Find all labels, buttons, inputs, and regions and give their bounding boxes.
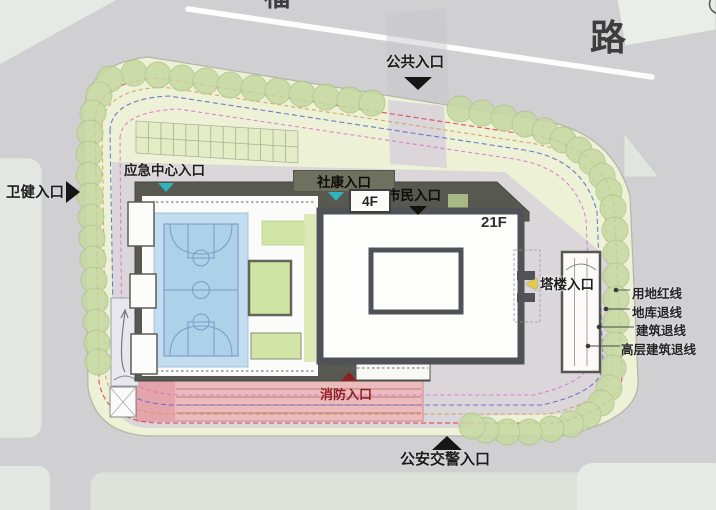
fire-lane-end-block (137, 381, 175, 421)
emergency-entrance-arrow-icon (158, 183, 174, 192)
legend-basement-setback-label: 地库退线 (632, 302, 682, 321)
health-entrance-label: 卫健入口 (6, 186, 64, 202)
community-entrance-label: 社康入口 (317, 171, 371, 191)
roof-green-1 (262, 221, 306, 245)
tower-floor-label: 21F (481, 215, 507, 232)
traffic-island (624, 133, 659, 177)
community-entrance-arrow-icon (328, 192, 344, 201)
tower-entrance-label: 塔楼入口 (540, 278, 594, 293)
sidewalk-top-left (0, 0, 116, 64)
public-entrance-label: 公共入口 (386, 56, 444, 72)
roof-green-strip (304, 214, 316, 362)
building-across-road (617, 0, 716, 46)
citizen-entrance-label: 市民入口 (387, 189, 441, 204)
roof-green-patch-2 (448, 194, 468, 208)
podium-floor-badge: 4F (349, 189, 391, 213)
tower-core (371, 250, 461, 312)
citizen-entrance-arrow-icon (409, 206, 427, 215)
site-plan-drawing (0, 0, 716, 510)
sidewalk-bottom-left (0, 466, 50, 510)
fire-entrance-label: 消防入口 (320, 388, 372, 402)
public-entrance-path (388, 100, 447, 168)
fire-lane (137, 381, 423, 421)
basketball-court (164, 224, 238, 356)
health-entrance-arrow-icon (66, 181, 80, 203)
fire-entrance-arrow-icon (341, 372, 357, 381)
site-plan: 路 福 公共入口 卫健入口 应急中心入口 社康入口 市民入口 4F 21F 塔楼… (0, 0, 716, 510)
police-entrance-label: 公安交警入口 (400, 452, 490, 469)
basement-ramp-right (562, 252, 600, 372)
public-entrance-arrow-icon (404, 77, 432, 90)
roof-green-3 (251, 333, 301, 359)
legend-building-setback-label: 建筑退线 (636, 320, 686, 339)
police-entrance-arrow-icon (432, 436, 462, 450)
emergency-entrance-label: 应急中心入口 (124, 164, 205, 179)
road-name-partial: 福 (264, 0, 290, 12)
stair-cores (128, 202, 157, 374)
tower-entrance-arrow-icon (526, 278, 537, 290)
legend-property-line-label: 用地红线 (632, 283, 682, 302)
road-name: 路 (590, 18, 626, 58)
podium-floor-label: 4F (362, 194, 378, 209)
sidewalk-bottom-right (577, 463, 716, 510)
roof-green-2 (249, 261, 291, 315)
tower-entry-notch-bottom (517, 293, 535, 302)
legend-highrise-setback-label: 高层建筑退线 (621, 339, 696, 358)
